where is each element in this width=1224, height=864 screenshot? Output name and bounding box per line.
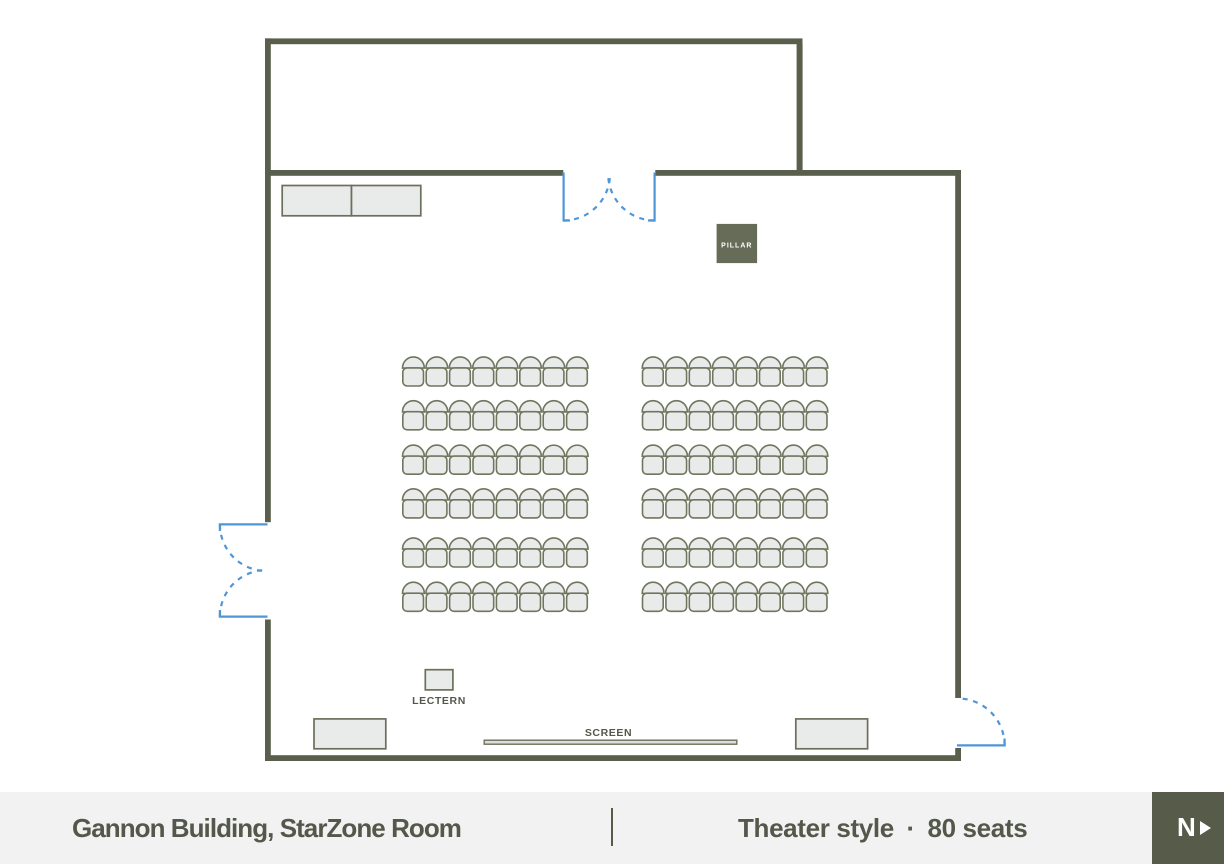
- svg-text:LECTERN: LECTERN: [412, 695, 466, 707]
- svg-text:SCREEN: SCREEN: [585, 727, 632, 739]
- svg-text:PILLAR: PILLAR: [721, 242, 752, 249]
